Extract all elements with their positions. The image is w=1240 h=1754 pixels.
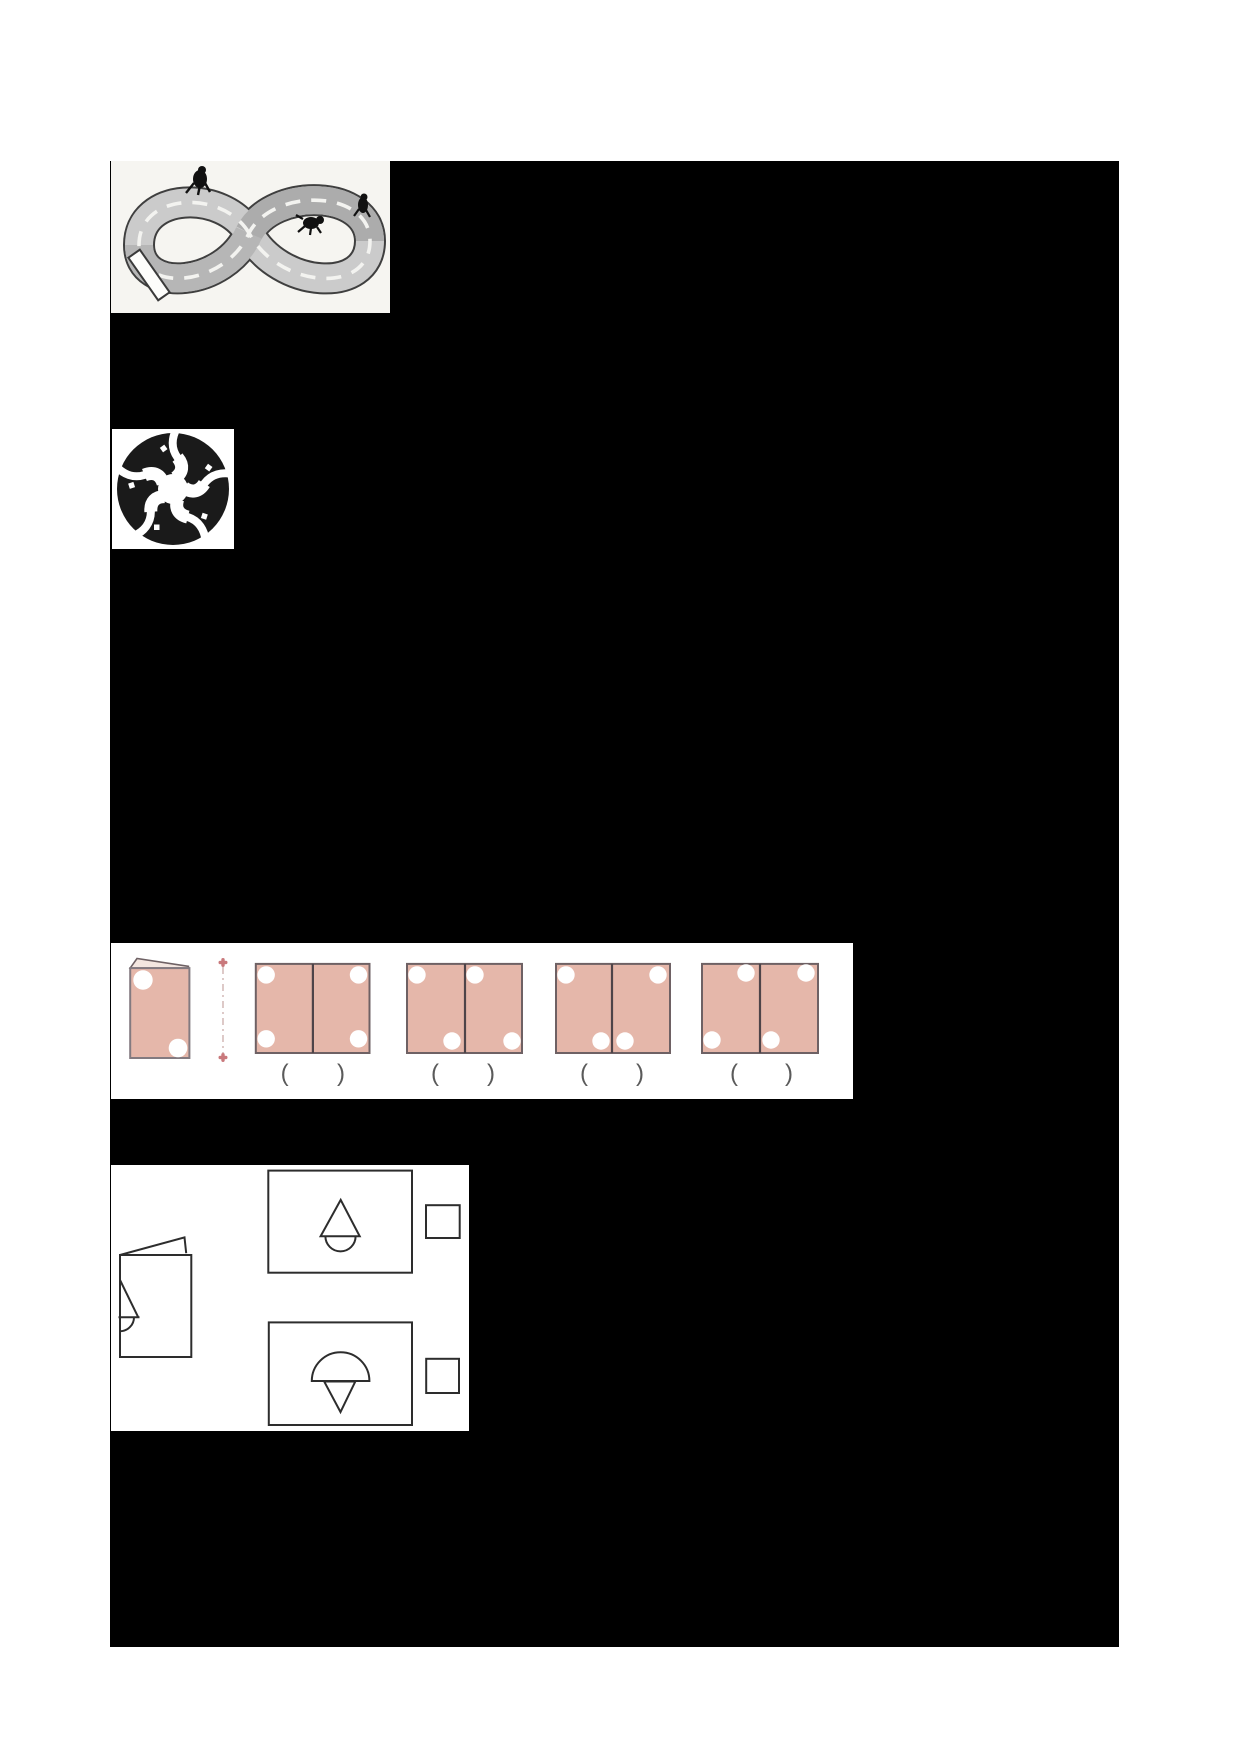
svg-text:(: ( [730, 1060, 738, 1087]
svg-text:(: ( [580, 1060, 588, 1087]
svg-text:): ) [636, 1060, 644, 1087]
svg-text:): ) [785, 1060, 793, 1087]
svg-text:): ) [337, 1060, 345, 1087]
svg-text:(: ( [281, 1060, 289, 1087]
svg-text:): ) [487, 1060, 495, 1087]
svg-text:(: ( [431, 1060, 439, 1087]
